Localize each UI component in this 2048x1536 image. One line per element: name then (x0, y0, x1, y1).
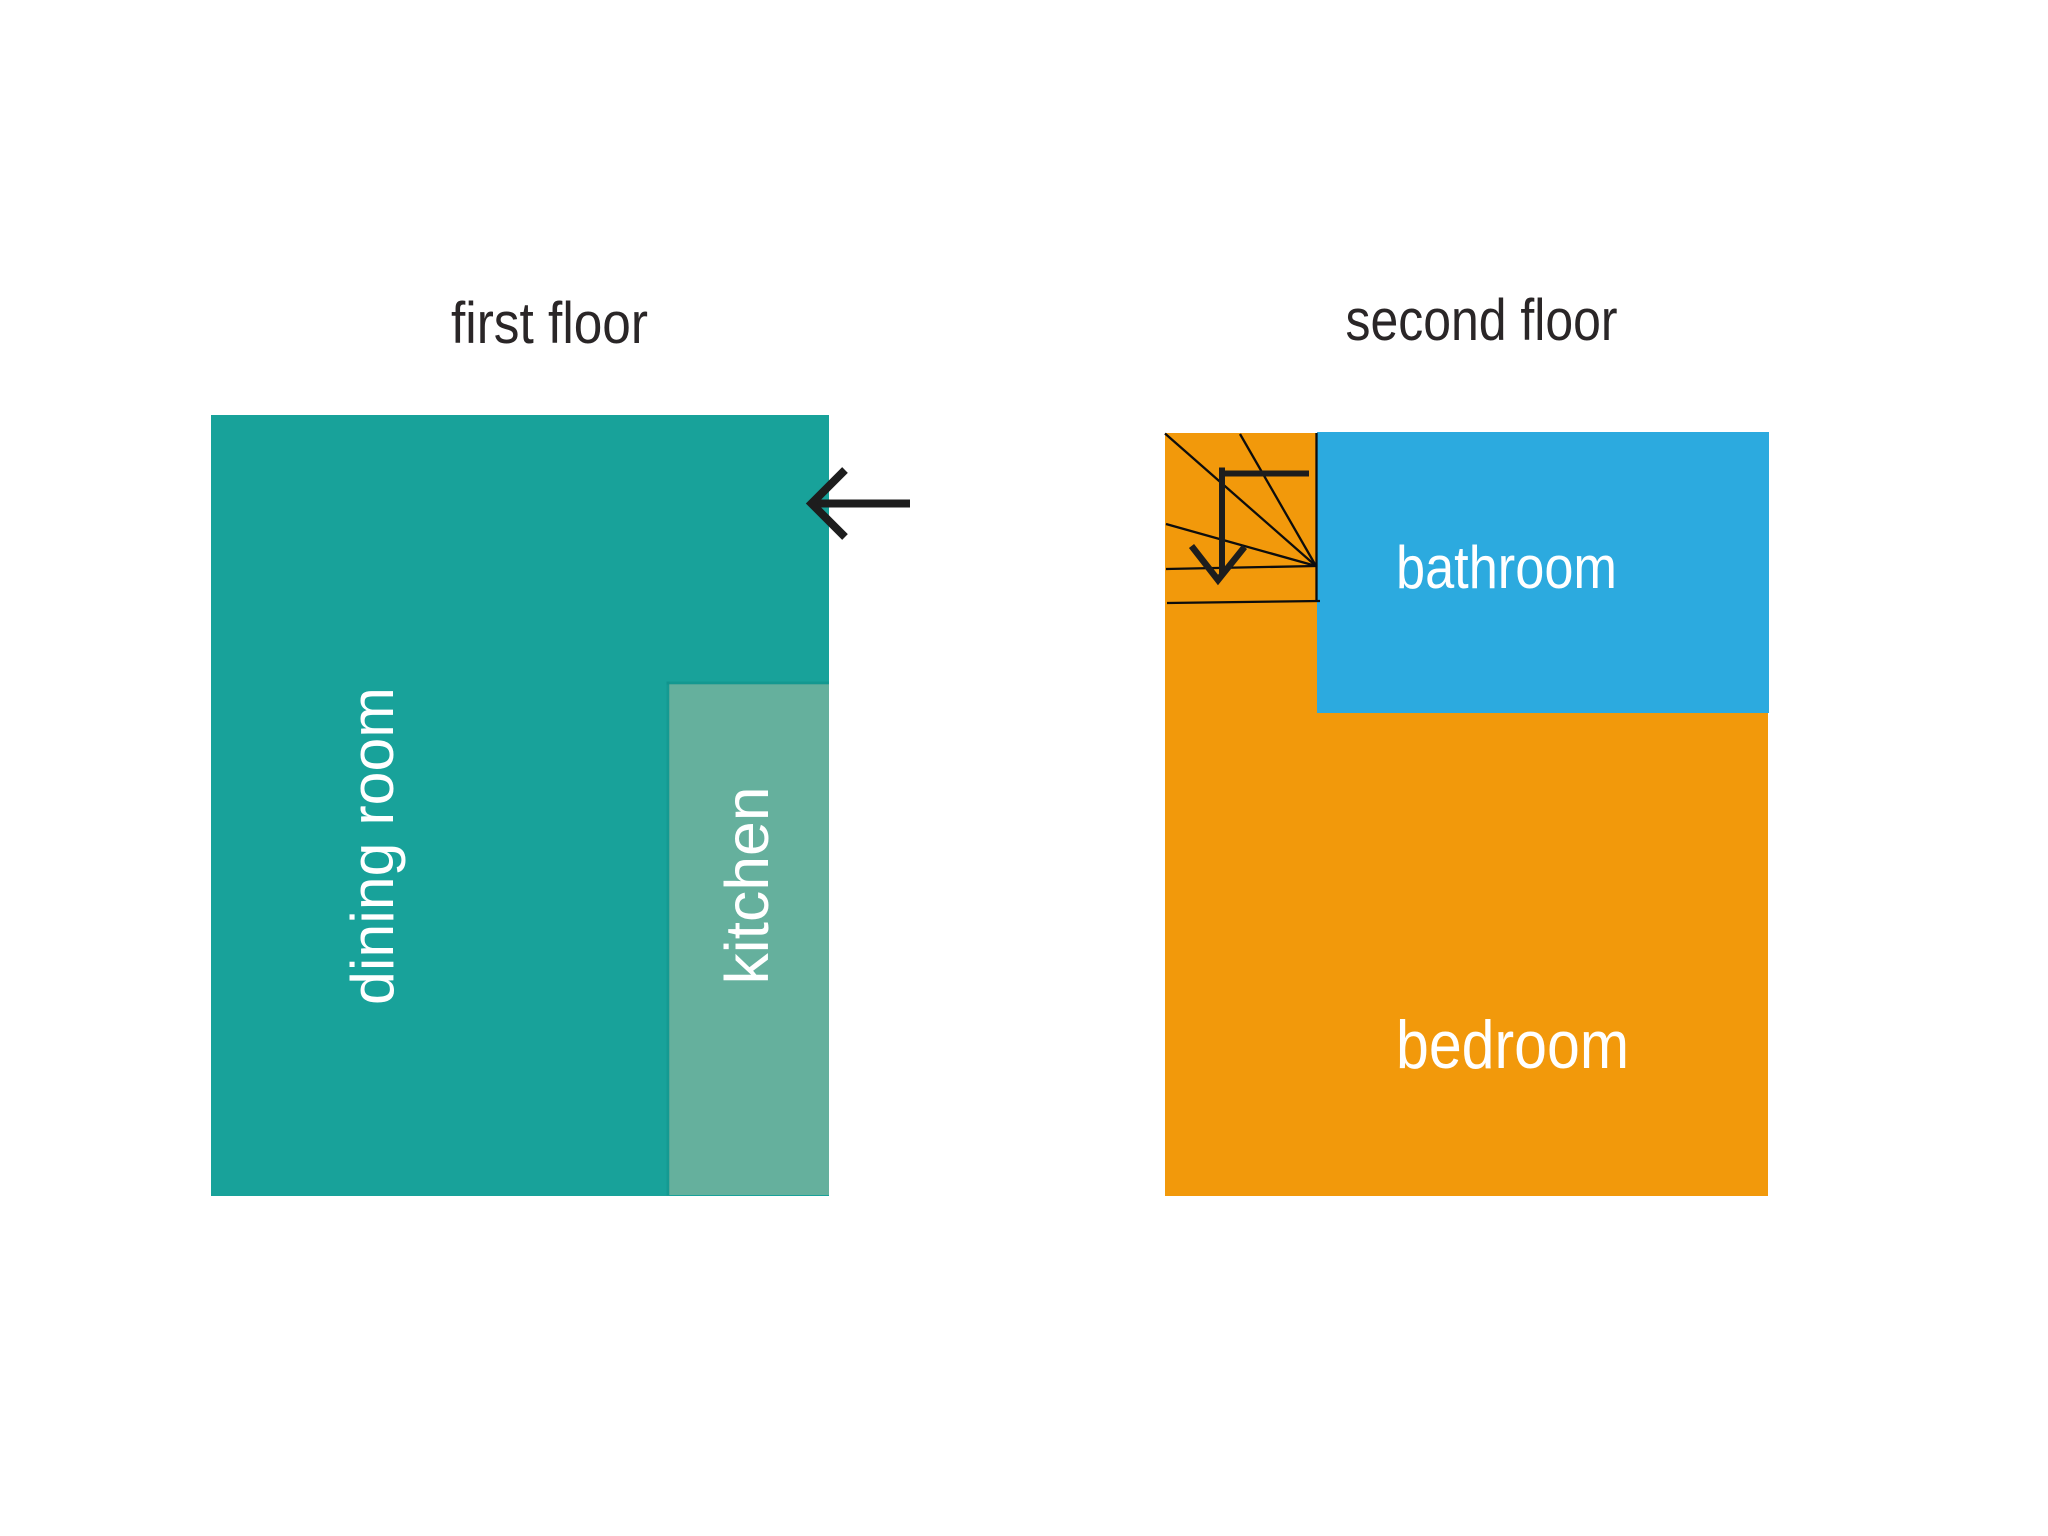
svg-text:bathroom: bathroom (1396, 534, 1617, 601)
svg-text:dining room: dining room (339, 687, 406, 1005)
svg-text:bedroom: bedroom (1396, 1007, 1629, 1083)
svg-text:first floor: first floor (451, 291, 648, 356)
svg-text:second floor: second floor (1346, 288, 1618, 353)
svg-text:kitchen: kitchen (713, 787, 781, 985)
